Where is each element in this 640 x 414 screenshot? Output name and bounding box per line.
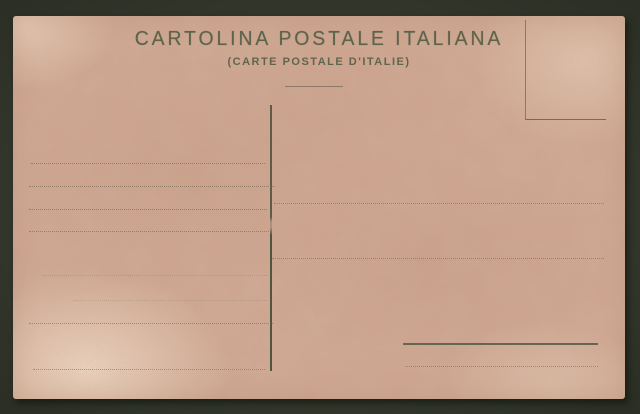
signature-line [403,343,598,345]
center-divider-line [270,105,272,371]
postcard: CARTOLINA POSTALE ITALIANA (CARTE POSTAL… [13,16,625,399]
address-ruling-line [272,258,604,259]
message-ruling-line [33,369,265,370]
address-ruling-line [274,203,604,204]
message-ruling-line [73,300,271,301]
subtitle-rule-line [285,86,343,87]
message-ruling-line [31,163,265,164]
message-ruling-line [29,323,273,324]
message-ruling-line [43,275,271,276]
address-ruling-line [405,366,598,367]
message-ruling-line [29,186,275,187]
message-ruling-line [29,209,267,210]
message-ruling-line [29,231,271,232]
photo-background: { "postcard": { "title": "CARTOLINA POST… [0,0,640,414]
stamp-box [525,20,606,120]
